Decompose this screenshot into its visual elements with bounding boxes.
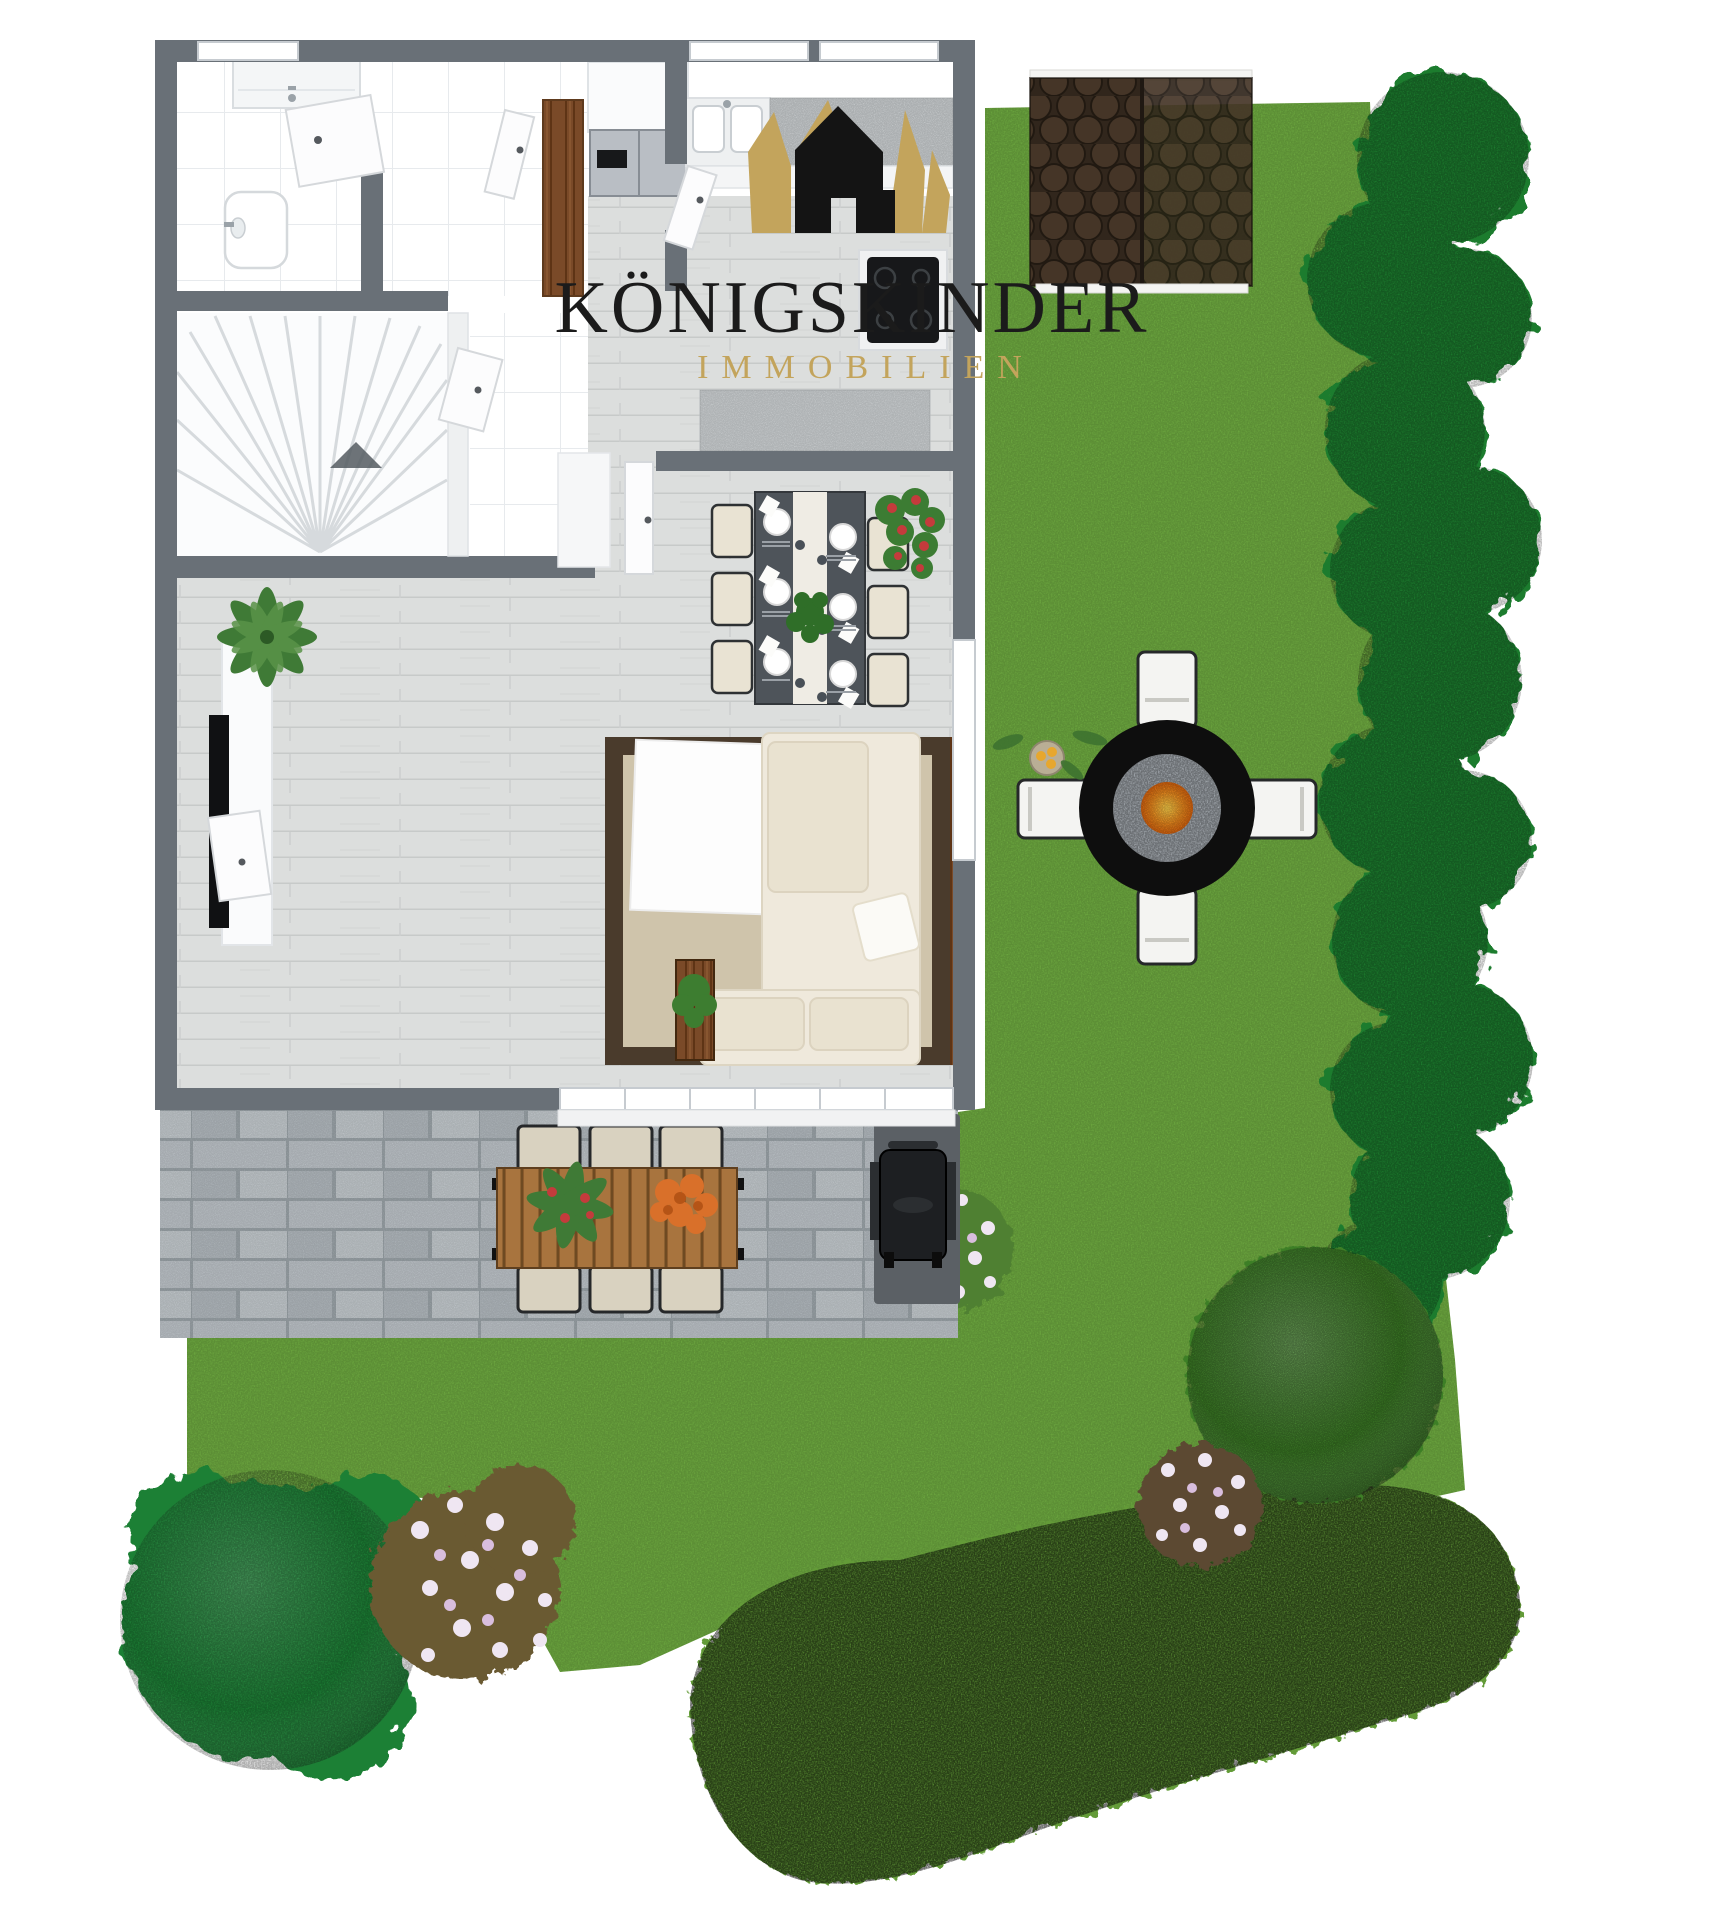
- dining-chair: [712, 641, 752, 693]
- outdoor-chair: [590, 1266, 652, 1312]
- logo-subtitle: IMMOBILIEN: [697, 349, 1035, 386]
- dining-chair: [712, 573, 752, 625]
- bathroom-door: [286, 95, 384, 187]
- garden-shed: [1030, 70, 1252, 293]
- dining-chair: [868, 586, 908, 638]
- dining-chair: [712, 505, 752, 557]
- house: [155, 40, 975, 1126]
- window: [198, 42, 298, 60]
- throw-blanket: [630, 740, 768, 915]
- window: [953, 640, 975, 860]
- outdoor-chair: [518, 1266, 580, 1312]
- outdoor-chair: [590, 1126, 652, 1172]
- palm-plant: [217, 587, 317, 687]
- outdoor-dining-table: [492, 1126, 744, 1312]
- shed-roof-ridge: [1140, 78, 1144, 286]
- floorplan-canvas: KÖNIGSKINDER IMMOBILIEN: [0, 0, 1715, 1920]
- window: [820, 42, 938, 60]
- bbq-grill: [870, 1114, 960, 1304]
- side-door: [208, 811, 271, 901]
- fire-pit-chair: [1138, 652, 1196, 728]
- dining-chair: [868, 654, 908, 706]
- outdoor-chair: [518, 1126, 580, 1172]
- floorplan-rendering: KÖNIGSKINDER IMMOBILIEN: [0, 0, 1715, 1920]
- window: [690, 42, 808, 60]
- terrace-door-sill: [558, 1110, 955, 1126]
- coffee-plant-stand: [672, 960, 717, 1060]
- wall-stub: [558, 453, 610, 567]
- flower-patch-right: [1138, 1443, 1262, 1567]
- fire-pit-chair: [1138, 888, 1196, 964]
- terrace-sliding-door: [560, 1088, 953, 1110]
- outdoor-chair: [660, 1266, 722, 1312]
- terrace: [160, 1110, 960, 1338]
- outdoor-chair: [660, 1126, 722, 1172]
- washbasin: [224, 192, 287, 268]
- logo-title: KÖNIGSKINDER: [554, 267, 1149, 349]
